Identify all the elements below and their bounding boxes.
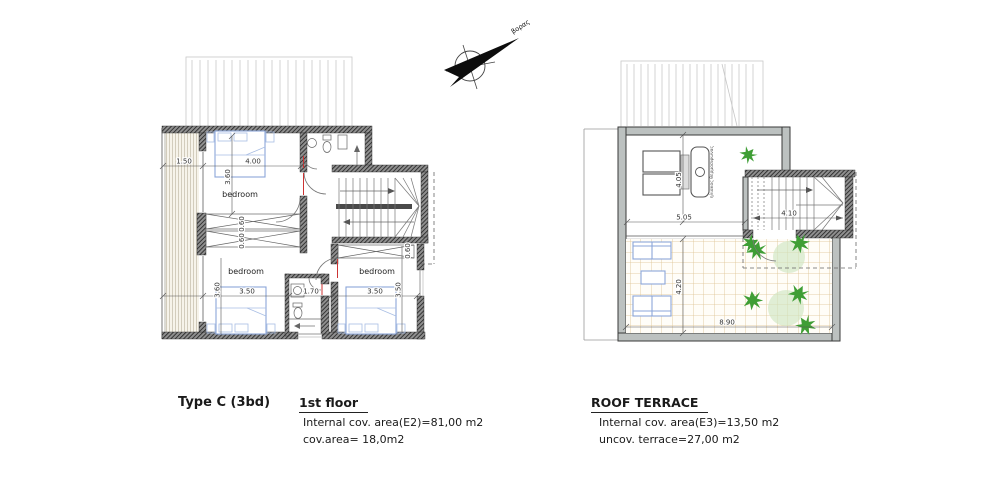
exit-arrow-icon: [294, 323, 300, 329]
table-icon: [641, 271, 665, 284]
first-floor-title: 1st floor: [299, 395, 368, 413]
roof-terrace-title: ROOF TERRACE: [591, 395, 708, 413]
floor-plan-sheet: βορας: [0, 0, 1000, 500]
toilet-icon: [294, 308, 302, 319]
bed-icon: [207, 131, 274, 177]
up-arrow-icon: [354, 145, 360, 152]
dim-label: 1.70: [303, 288, 319, 296]
roof-terrace-plan: ηλιακος θερμοσιφωνας: [584, 127, 856, 341]
toilet-icon: [323, 142, 331, 153]
north-label: βορας: [510, 18, 532, 36]
dim-label: 0.60: [238, 233, 246, 249]
dim-label: 3.50: [367, 288, 383, 296]
drawing: βορας: [0, 0, 1000, 500]
stairs-icon: [752, 177, 843, 230]
wardrobe-icon: [338, 245, 414, 258]
boiler-icon: ηλιακος θερμοσιφωνας: [691, 145, 715, 198]
plan-type-title: Type C (3bd): [178, 395, 270, 410]
dim-label: 4.00: [245, 158, 261, 166]
dim-label: 4.05: [675, 172, 683, 188]
dim-label: 3.60: [224, 169, 232, 185]
sofa-icon: [633, 296, 671, 316]
dim-label: 0.60: [238, 216, 246, 232]
north-arrow-icon: βορας: [444, 18, 531, 89]
eaves-line: [584, 129, 618, 340]
dim-label: 3.50: [395, 282, 403, 298]
first-floor-plan: bedroom bedroom bedroom 1.50 4.00 3.60 0…: [160, 126, 434, 339]
roof-terrace-note-1: Internal cov. area(E3)=13,50 m2: [599, 416, 779, 429]
dim-label: 5.05: [676, 214, 692, 222]
pergola-right: [621, 61, 763, 127]
sink-icon: [308, 139, 317, 148]
toilet-tank: [293, 303, 302, 307]
first-floor-note-1: Internal cov. area(E2)=81,00 m2: [303, 416, 483, 429]
dim-label: 1.50: [176, 158, 192, 166]
pergola-left: [186, 57, 352, 127]
bathroom-top: [308, 135, 361, 167]
dim-label: 4.20: [675, 279, 683, 295]
sofa-icon: [633, 242, 671, 259]
dim-label: 3.60: [214, 282, 222, 298]
roof-terrace-note-2: uncov. terrace=27,00 m2: [599, 433, 740, 446]
toilet-tank: [323, 135, 331, 140]
wardrobe-icon: [206, 214, 300, 247]
room-label: bedroom: [228, 267, 264, 276]
room-label: bedroom: [222, 190, 258, 199]
dim-label: 3.50: [239, 288, 255, 296]
dim-label: 8.90: [719, 319, 735, 327]
room-label: bedroom: [359, 267, 395, 276]
solar-heater-label: ηλιακος θερμοσιφωνας: [709, 145, 715, 198]
dim-label: 4.10: [781, 210, 797, 218]
basin-icon: [291, 284, 304, 297]
dim-label: 0.60: [404, 243, 412, 259]
first-floor-note-2: cov.area= 18,0m2: [303, 433, 404, 446]
shower-icon: [338, 135, 347, 149]
